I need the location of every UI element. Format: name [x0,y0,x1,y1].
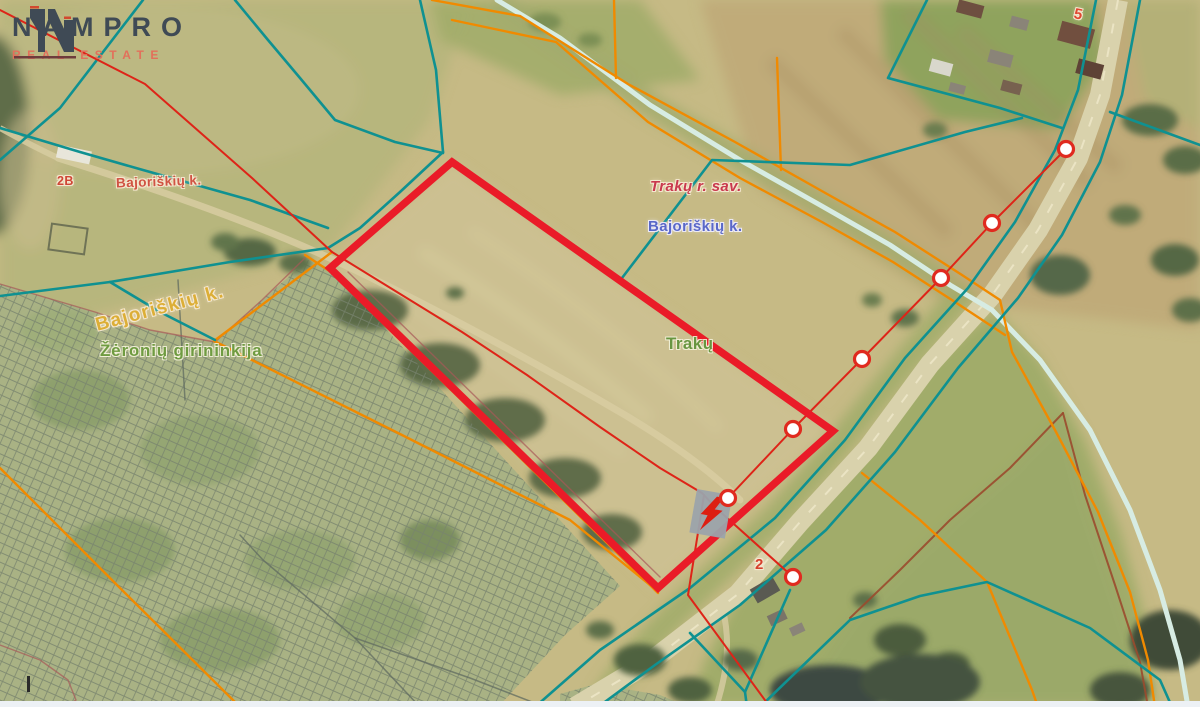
map-canvas [0,0,1200,707]
map-bottom-edge [0,701,1200,707]
logo-icon [12,5,82,61]
terrain-base [0,0,1200,707]
map-viewport: Trakų r. sav. Bajoriškių k. Bajoriškių k… [0,0,1200,707]
logo: NAMPRO REAL ESTATE [12,5,192,61]
